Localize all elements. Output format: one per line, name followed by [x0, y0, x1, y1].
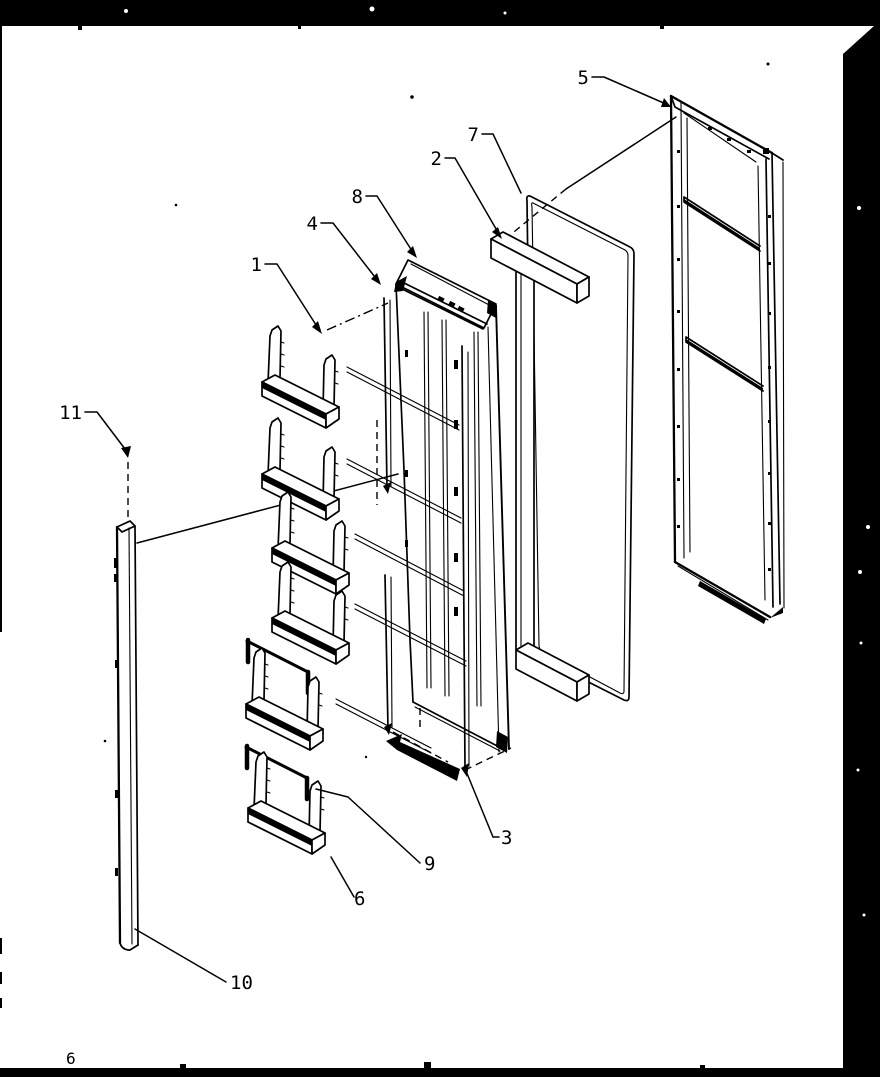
callouts: 1 4 8 2 7 5 11 [59, 67, 671, 994]
callout-label-1: 1 [251, 254, 262, 276]
callout-label-8: 8 [352, 186, 363, 208]
callout-5: 5 [578, 67, 671, 107]
liner-rail-strip-part3 [461, 346, 469, 777]
callout-11: 11 [59, 402, 131, 520]
assembly-arrow-icon [386, 734, 460, 781]
callout-1: 1 [251, 254, 322, 334]
door-bin [246, 648, 323, 750]
callout-label-11: 11 [59, 402, 82, 424]
door-bins [246, 326, 349, 854]
outer-door-panel [671, 96, 784, 624]
phantom-lines [137, 117, 676, 770]
callout-label-4: 4 [307, 213, 318, 235]
callout-2: 2 [431, 148, 502, 239]
inner-door-liner [336, 260, 509, 777]
door-bin [262, 418, 339, 520]
callout-label-10: 10 [230, 972, 253, 994]
page-number: 6 [66, 1049, 76, 1068]
callout-7: 7 [468, 124, 521, 193]
callout-label-5: 5 [578, 67, 589, 89]
door-bin [262, 326, 339, 428]
scanned-diagram-page: 1 4 8 2 7 5 11 [0, 0, 880, 1077]
callout-8: 8 [352, 186, 417, 258]
callout-label-7: 7 [468, 124, 479, 146]
callout-6: 6 [331, 857, 365, 910]
callout-label-6: 6 [354, 888, 365, 910]
screw-tick-marks [677, 127, 771, 571]
callout-label-2: 2 [431, 148, 442, 170]
exploded-diagram: 1 4 8 2 7 5 11 [0, 0, 880, 1077]
callout-label-9: 9 [424, 853, 435, 875]
callout-10: 10 [135, 929, 253, 994]
callout-4: 4 [307, 213, 381, 285]
door-trim-strip [114, 521, 138, 950]
callout-3: 3 [466, 771, 512, 849]
callout-label-3: 3 [501, 827, 512, 849]
